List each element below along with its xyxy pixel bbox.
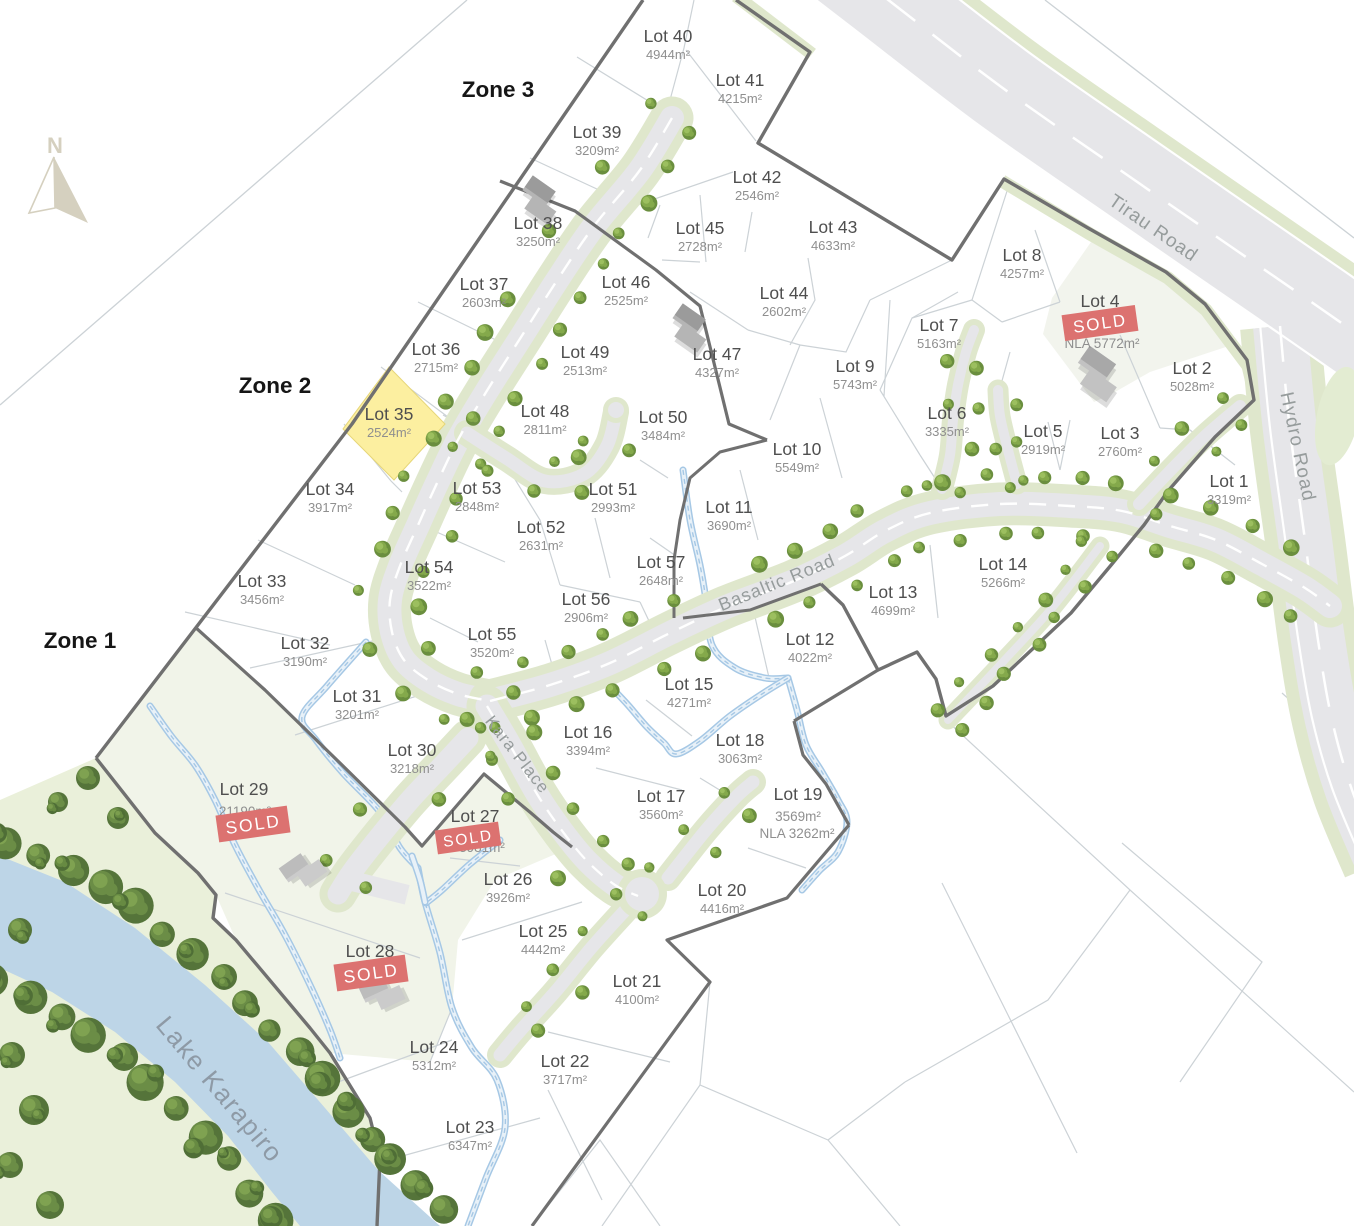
svg-text:Lot 45: Lot 45 [676,218,725,238]
svg-text:2919m²: 2919m² [1021,442,1066,457]
svg-text:4022m²: 4022m² [788,650,833,665]
svg-text:Lot 9: Lot 9 [836,356,875,376]
svg-text:Lot 24: Lot 24 [410,1037,459,1057]
svg-text:2524m²: 2524m² [367,425,412,440]
svg-text:5312m²: 5312m² [412,1058,457,1073]
svg-text:2993m²: 2993m² [591,500,636,515]
svg-text:3917m²: 3917m² [308,500,353,515]
svg-text:Lot 49: Lot 49 [561,342,610,362]
svg-text:Lot 55: Lot 55 [468,624,517,644]
svg-text:Lot 44: Lot 44 [760,283,809,303]
svg-text:3926m²: 3926m² [486,890,531,905]
svg-text:Lot 35: Lot 35 [365,404,414,424]
svg-text:Lot 25: Lot 25 [519,921,568,941]
svg-text:2715m²: 2715m² [414,360,459,375]
svg-text:Lot 48: Lot 48 [521,401,570,421]
svg-text:5163m²: 5163m² [917,336,962,351]
svg-text:3520m²: 3520m² [470,645,515,660]
svg-text:Lot 5: Lot 5 [1024,421,1063,441]
svg-text:5743m²: 5743m² [833,377,878,392]
svg-text:Lot 40: Lot 40 [644,26,693,46]
svg-text:Zone 1: Zone 1 [44,628,117,653]
svg-text:Lot 41: Lot 41 [716,70,765,90]
svg-text:3250m²: 3250m² [516,234,561,249]
svg-text:2546m²: 2546m² [735,188,780,203]
svg-text:Lot 12: Lot 12 [786,629,835,649]
svg-text:Lot 30: Lot 30 [388,740,437,760]
svg-text:Lot 57: Lot 57 [637,552,686,572]
svg-text:3394m²: 3394m² [566,743,611,758]
svg-text:Lot 37: Lot 37 [460,274,509,294]
svg-text:4699m²: 4699m² [871,603,916,618]
svg-text:Lot 34: Lot 34 [306,479,355,499]
svg-text:Lot 7: Lot 7 [920,315,959,335]
svg-text:Lot 33: Lot 33 [238,571,287,591]
svg-text:4416m²: 4416m² [700,901,745,916]
svg-text:Lot 46: Lot 46 [602,272,651,292]
svg-text:4633m²: 4633m² [811,238,856,253]
svg-text:3484m²: 3484m² [641,428,686,443]
svg-text:4442m²: 4442m² [521,942,566,957]
svg-text:4271m²: 4271m² [667,695,712,710]
svg-text:5549m²: 5549m² [775,460,820,475]
svg-text:N: N [47,133,63,158]
svg-text:Lot 29: Lot 29 [220,779,269,799]
svg-text:2728m²: 2728m² [678,239,723,254]
svg-text:Lot 17: Lot 17 [637,786,686,806]
svg-text:Lot 56: Lot 56 [562,589,611,609]
svg-text:2525m²: 2525m² [604,293,649,308]
svg-text:Lot 10: Lot 10 [773,439,822,459]
svg-text:3209m²: 3209m² [575,143,620,158]
svg-text:Lot 36: Lot 36 [412,339,461,359]
svg-text:3560m²: 3560m² [639,807,684,822]
svg-text:4944m²: 4944m² [646,47,691,62]
svg-text:Lot 31: Lot 31 [333,686,382,706]
svg-text:5028m²: 5028m² [1170,379,1215,394]
svg-text:Lot 20: Lot 20 [698,880,747,900]
svg-text:2811m²: 2811m² [523,422,567,437]
svg-text:Lot 14: Lot 14 [979,554,1028,574]
svg-text:Lot 16: Lot 16 [564,722,613,742]
svg-text:Lot 18: Lot 18 [716,730,765,750]
svg-text:Zone 3: Zone 3 [462,77,535,102]
svg-text:4327m²: 4327m² [695,365,740,380]
svg-text:3522m²: 3522m² [407,578,452,593]
svg-text:3690m²: 3690m² [707,518,752,533]
svg-text:Lot 22: Lot 22 [541,1051,590,1071]
svg-text:Lot 53: Lot 53 [453,478,502,498]
svg-text:3717m²: 3717m² [543,1072,588,1087]
svg-text:3201m²: 3201m² [335,707,380,722]
svg-text:Lot 39: Lot 39 [573,122,622,142]
svg-text:Lot 43: Lot 43 [809,217,858,237]
svg-text:Lot 42: Lot 42 [733,167,782,187]
svg-text:Lot 2: Lot 2 [1173,358,1212,378]
svg-text:Lot 3: Lot 3 [1101,423,1140,443]
svg-text:2648m²: 2648m² [639,573,684,588]
svg-text:Lot 47: Lot 47 [693,344,742,364]
svg-text:Lot 52: Lot 52 [517,517,566,537]
svg-text:3569m²: 3569m² [775,809,821,824]
svg-text:Lot 26: Lot 26 [484,869,533,889]
svg-text:2906m²: 2906m² [564,610,609,625]
svg-text:4215m²: 4215m² [718,91,763,106]
svg-text:Lot 21: Lot 21 [613,971,662,991]
svg-text:Lot 8: Lot 8 [1003,245,1042,265]
svg-text:Lot 32: Lot 32 [281,633,330,653]
svg-text:Lot 50: Lot 50 [639,407,688,427]
svg-text:Lot 23: Lot 23 [446,1117,495,1137]
svg-text:Lot 13: Lot 13 [869,582,918,602]
svg-text:Lot 11: Lot 11 [705,497,752,517]
svg-text:2603m²: 2603m² [462,295,507,310]
svg-text:Lot 1: Lot 1 [1210,471,1249,491]
svg-text:3190m²: 3190m² [283,654,328,669]
svg-text:3456m²: 3456m² [240,592,285,607]
svg-text:Lot 19: Lot 19 [774,784,823,804]
svg-text:3218m²: 3218m² [390,761,435,776]
svg-text:2848m²: 2848m² [455,499,500,514]
svg-text:Lot 51: Lot 51 [589,479,638,499]
svg-text:5266m²: 5266m² [981,575,1026,590]
svg-text:2760m²: 2760m² [1098,444,1143,459]
svg-text:6347m²: 6347m² [448,1138,493,1153]
svg-text:2513m²: 2513m² [563,363,608,378]
svg-text:4100m²: 4100m² [615,992,660,1007]
svg-text:3335m²: 3335m² [925,424,970,439]
svg-text:4257m²: 4257m² [1000,266,1045,281]
svg-text:3319m²: 3319m² [1207,492,1252,507]
svg-text:Lot 54: Lot 54 [405,557,454,577]
svg-text:2631m²: 2631m² [519,538,564,553]
svg-text:2602m²: 2602m² [762,304,807,319]
svg-text:NLA 3262m²: NLA 3262m² [759,826,835,841]
svg-text:Zone 2: Zone 2 [239,373,312,398]
svg-text:3063m²: 3063m² [718,751,763,766]
svg-text:Lot 38: Lot 38 [514,213,563,233]
svg-text:Lot 15: Lot 15 [665,674,714,694]
svg-text:Lot 6: Lot 6 [928,403,967,423]
